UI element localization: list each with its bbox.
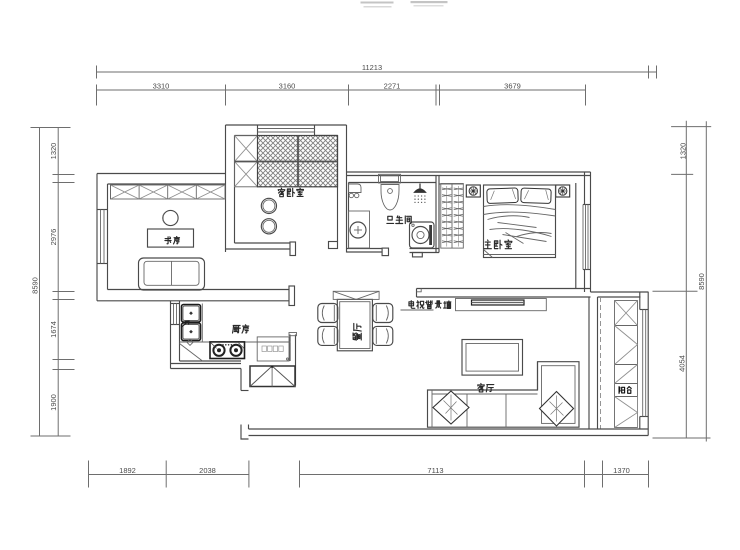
svg-text:3310: 3310: [153, 81, 170, 90]
svg-text:1320: 1320: [678, 143, 687, 160]
svg-text:8590: 8590: [31, 277, 40, 294]
svg-text:8590: 8590: [697, 273, 706, 290]
svg-text:1900: 1900: [49, 394, 58, 411]
svg-text:1674: 1674: [49, 321, 58, 338]
svg-text:1320: 1320: [49, 143, 58, 160]
svg-text:3679: 3679: [504, 81, 521, 90]
svg-text:11213: 11213: [362, 63, 382, 72]
svg-text:3160: 3160: [279, 81, 296, 90]
svg-text:1892: 1892: [119, 466, 136, 475]
svg-text:2271: 2271: [384, 81, 401, 90]
svg-text:1370: 1370: [613, 466, 630, 475]
svg-text:7113: 7113: [427, 466, 443, 475]
svg-text:4054: 4054: [678, 355, 687, 372]
svg-text:2038: 2038: [199, 466, 216, 475]
svg-text:2976: 2976: [49, 229, 58, 246]
